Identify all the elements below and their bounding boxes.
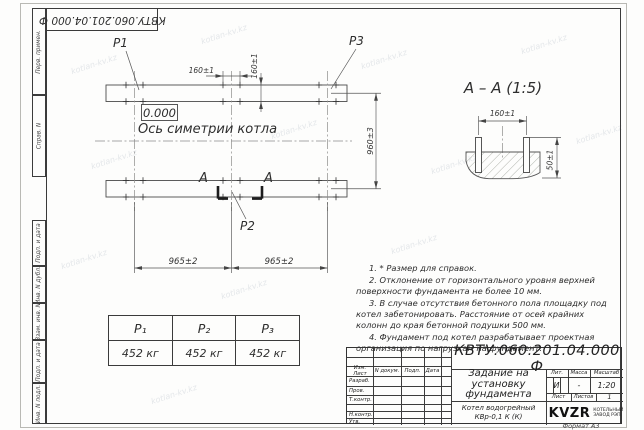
doc-number-box: КВТУ.060.201.04.000 Ф xyxy=(46,8,158,31)
doc-number: КВТУ.060.201.04.000 Ф xyxy=(451,348,623,369)
col-izm-list: Изм. Лист xyxy=(347,366,373,376)
note-line: 1. * Размер для справок. xyxy=(356,263,618,274)
dim-160-horizontal: 160±1 xyxy=(186,66,214,75)
dim-50-detail: 50±1 xyxy=(545,149,555,172)
format-label: Формат А3 xyxy=(540,422,622,430)
row-tkontr: Т.контр. xyxy=(347,395,373,404)
col-n-dokum: N докум. xyxy=(373,366,401,376)
logo-text: KVZR xyxy=(549,406,591,421)
drawing-sheet: kotlan-kv.kz kotlan-kv.kz kotlan-kv.kz k… xyxy=(0,0,644,430)
sidebar-cell-sprav-n: Справ. N xyxy=(32,95,46,177)
load-table-value-row: 452 кг 452 кг 452 кг xyxy=(109,341,300,366)
row-nkontr: Н.контр. xyxy=(347,411,373,418)
load-point-label-p2: P2 xyxy=(240,219,255,233)
scale-header: Масштаб xyxy=(590,369,623,377)
sidebar-label: Инв. N подл. xyxy=(36,384,42,422)
section-view-title: А – А (1:5) xyxy=(448,79,558,97)
axis-of-symmetry-label: Ось симетрии котла xyxy=(138,122,277,137)
dim-960: 960±3 xyxy=(365,126,375,156)
logo-caption: КОТЕЛЬНЫЙ ЗАВОД РЭП xyxy=(593,408,623,419)
sidebar-cell-vzam-inv: Взам. инв. N xyxy=(32,303,46,340)
sidebar-cell-inv-dubl: Инв. N дубл. xyxy=(32,266,46,303)
dim-965-right: 965±2 xyxy=(261,257,297,267)
row-razrab: Разраб. xyxy=(347,376,373,386)
sidebar-label: Подп. и дата xyxy=(36,342,42,382)
mass-value: - xyxy=(568,377,590,393)
note-line: 2. Отклонение от горизонтального уровня … xyxy=(356,275,618,297)
load-table-value: 452 кг xyxy=(109,341,173,366)
scale-value: 1:20 xyxy=(590,377,623,393)
load-table-value: 452 кг xyxy=(236,341,300,366)
product-name: Котел водогрейный КВр-0,1 К (К) xyxy=(451,401,546,425)
load-table-value: 452 кг xyxy=(172,341,236,366)
load-table: P₁ P₂ P₃ 452 кг 452 кг 452 кг xyxy=(108,315,300,366)
sidebar-label: Справ. N xyxy=(36,123,42,150)
lit-value: И xyxy=(553,377,560,393)
elevation-value: 0.000 xyxy=(143,106,176,120)
load-table-header: P₃ xyxy=(236,316,300,341)
product-line: КВр-0,1 К (К) xyxy=(475,413,523,422)
col-data: Дата xyxy=(424,366,441,376)
doc-number-rotated: КВТУ.060.201.04.000 Ф xyxy=(39,14,166,26)
sheets-value: 1 xyxy=(596,393,623,401)
row-utv: Утв. xyxy=(347,418,373,425)
sidebar-cell-podp-data-1: Подп. и дата xyxy=(32,220,46,266)
sidebar-label: Перв. примен. xyxy=(36,30,42,74)
sidebar-cell-podp-data-2: Подп. и дата xyxy=(32,340,46,383)
logo-caption-line: ЗАВОД РЭП xyxy=(593,413,623,419)
drawing-title-text: Задание на установку фундамента xyxy=(463,369,535,401)
sidebar-cell-perv-primen: Перв. примен. xyxy=(32,8,46,95)
title-block: КВТУ.060.201.04.000 Ф Задание на установ… xyxy=(346,347,622,424)
mass-header: Масса xyxy=(568,369,590,377)
section-letter-right: А xyxy=(264,171,273,186)
sheet-label: Лист xyxy=(546,393,571,401)
load-table-header: P₂ xyxy=(172,316,236,341)
centerlines xyxy=(95,71,503,211)
lit-header: Лит. xyxy=(546,369,568,377)
elevation-mark: 0.000 xyxy=(141,104,178,121)
product-line: Котел водогрейный xyxy=(462,404,536,413)
load-table-header: P₁ xyxy=(109,316,173,341)
col-podp: Подп. xyxy=(401,366,424,376)
technical-notes: 1. * Размер для справок. 2. Отклонение о… xyxy=(356,263,618,355)
sidebar-label: Инв. N дубл. xyxy=(36,266,42,304)
sidebar-label: Подп. и дата xyxy=(36,223,42,263)
dim-160-vertical: 160±1 xyxy=(249,53,259,79)
load-point-label-p1: P1 xyxy=(113,36,128,50)
note-line: 3. В случае отсутствия бетонного пола пл… xyxy=(356,298,618,331)
drawing-title: Задание на установку фундамента xyxy=(451,369,546,401)
sidebar-label: Взам. инв. N xyxy=(36,303,42,341)
load-table-header-row: P₁ P₂ P₃ xyxy=(109,316,300,341)
dim-160-detail: 160±1 xyxy=(484,109,521,118)
sheets-label: Листов xyxy=(571,393,596,401)
section-letter-left: А xyxy=(199,171,208,186)
load-point-label-p3: P3 xyxy=(349,34,364,48)
row-prov: Пров. xyxy=(347,386,373,395)
dim-965-left: 965±2 xyxy=(165,257,201,267)
sidebar-cell-inv-podl: Инв. N подл. xyxy=(32,383,46,424)
